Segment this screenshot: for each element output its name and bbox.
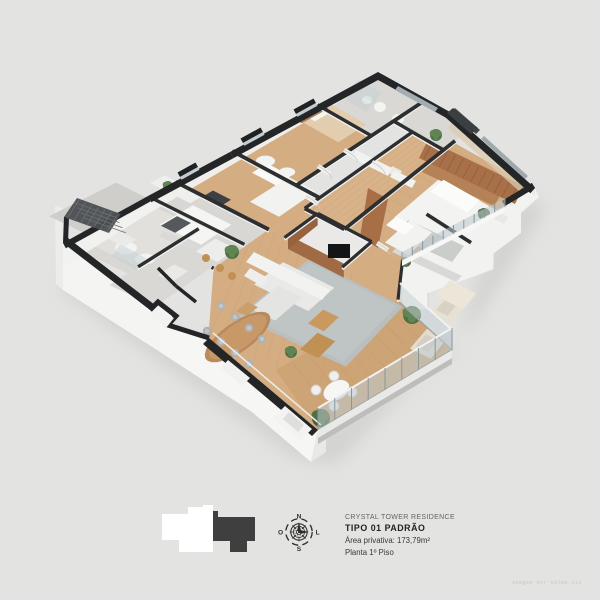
svg-text:L: L [316, 529, 320, 536]
svg-text:O: O [278, 529, 283, 536]
svg-text:S: S [297, 546, 302, 553]
svg-text:N: N [297, 513, 302, 520]
